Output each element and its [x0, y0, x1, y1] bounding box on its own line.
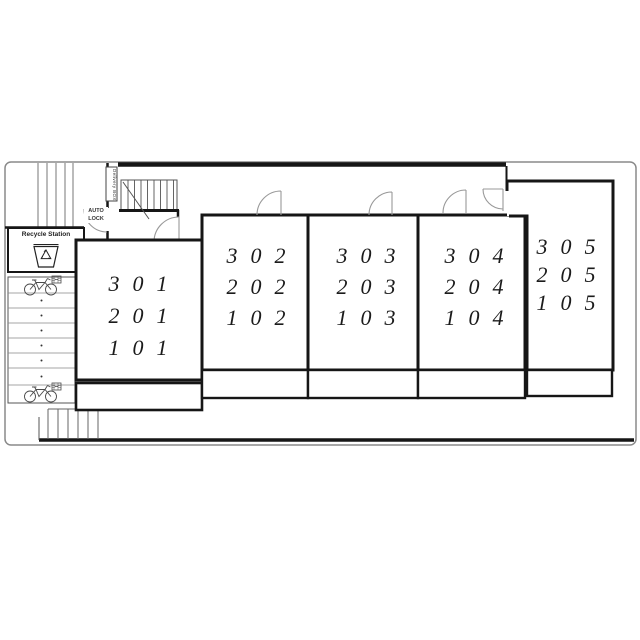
auto-lock-label: AUTO LOCK	[84, 207, 108, 223]
unit-303-balcony	[308, 370, 418, 398]
unit-303-number-2f: 203	[337, 274, 409, 300]
unit-302-balcony	[202, 370, 308, 398]
recycle-station-label: Recycle Station	[8, 231, 84, 238]
unit-303-number-3f: 303	[337, 243, 409, 269]
unit-301-balcony	[76, 383, 202, 410]
unit-305-balcony	[527, 370, 612, 396]
interior-staircase	[119, 180, 179, 219]
door-305	[483, 189, 503, 211]
unit-304-balcony	[418, 370, 525, 398]
delivery-box-label: Delivery BOX	[106, 169, 117, 201]
auto-lock-label-line1: AUTO	[84, 207, 108, 215]
floor-plan-canvas: Recycle Station AUTO LOCK Delivery BOX 3…	[0, 0, 640, 640]
unit-301-number-1f: 101	[109, 335, 181, 361]
bicycle-parking-area	[8, 276, 75, 403]
door-303	[369, 192, 392, 215]
hall-door	[154, 217, 179, 242]
unit-301-number-3f: 301	[109, 271, 181, 297]
unit-302-number-3f: 302	[227, 243, 299, 269]
unit-304-number-3f: 304	[445, 243, 517, 269]
unit-301-number-2f: 201	[109, 303, 181, 329]
unit-303-number-1f: 103	[337, 305, 409, 331]
exterior-steps-top-left	[5, 163, 84, 228]
unit-305-number-2f: 205	[537, 262, 609, 288]
unit-302-number-1f: 102	[227, 305, 299, 331]
unit-304-number-1f: 104	[445, 305, 517, 331]
stair-direction-line	[123, 182, 149, 219]
unit-304-number-2f: 204	[445, 274, 517, 300]
door-304	[443, 190, 466, 213]
door-302	[257, 191, 281, 215]
floor-plan-drawing	[0, 0, 640, 640]
unit-305-number-3f: 305	[537, 234, 609, 260]
unit-302-number-2f: 202	[227, 274, 299, 300]
unit-305-number-1f: 105	[537, 290, 609, 316]
exterior-steps-bottom-left	[48, 409, 98, 439]
unit-entrance-doors	[257, 189, 503, 215]
auto-lock-label-line2: LOCK	[84, 215, 108, 223]
